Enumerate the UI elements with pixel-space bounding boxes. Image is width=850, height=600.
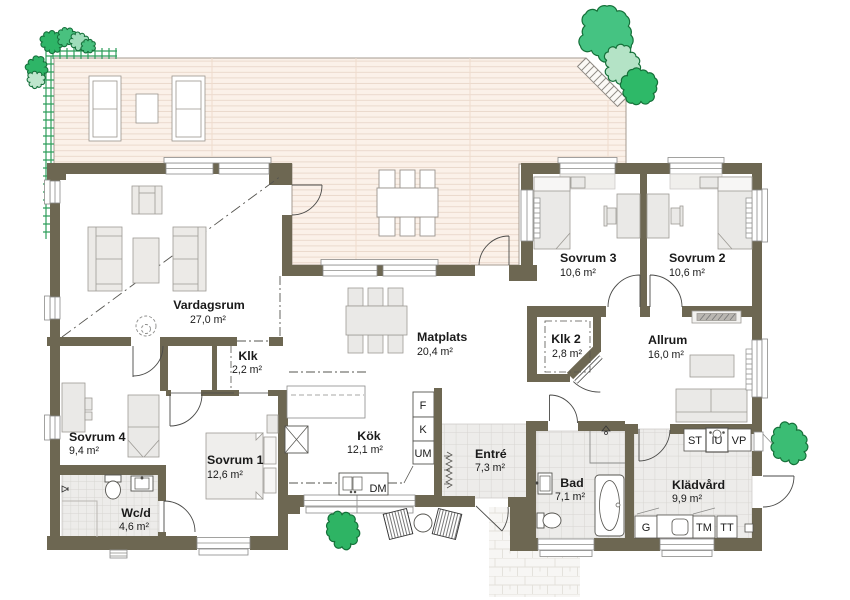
svg-text:9,9 m²: 9,9 m²	[672, 493, 702, 505]
svg-text:TM: TM	[696, 522, 712, 534]
svg-text:Bad: Bad	[560, 476, 583, 490]
svg-text:Kök: Kök	[357, 429, 381, 443]
svg-text:9,4 m²: 9,4 m²	[69, 445, 99, 457]
svg-text:ST: ST	[688, 435, 702, 447]
svg-text:Klk 2: Klk 2	[551, 332, 581, 346]
svg-text:F: F	[420, 400, 427, 412]
svg-text:20,4 m²: 20,4 m²	[417, 346, 453, 358]
svg-text:7,1 m²: 7,1 m²	[555, 491, 585, 503]
svg-text:Sovrum 1: Sovrum 1	[207, 453, 264, 467]
svg-text:TT: TT	[720, 522, 734, 534]
svg-text:Klk: Klk	[238, 349, 257, 363]
svg-text:G: G	[642, 522, 651, 534]
svg-text:4,6 m²: 4,6 m²	[119, 521, 149, 533]
svg-text:Matplats: Matplats	[417, 330, 467, 344]
svg-text:7,3 m²: 7,3 m²	[475, 462, 505, 474]
svg-text:16,0 m²: 16,0 m²	[648, 349, 684, 361]
svg-text:2,2 m²: 2,2 m²	[232, 364, 262, 376]
svg-text:Entré: Entré	[475, 447, 507, 461]
svg-text:Allrum: Allrum	[648, 333, 687, 347]
svg-text:Wc/d: Wc/d	[121, 506, 151, 520]
svg-text:VP: VP	[732, 435, 747, 447]
svg-text:2,8 m²: 2,8 m²	[552, 348, 582, 360]
svg-text:10,6 m²: 10,6 m²	[560, 267, 596, 279]
svg-text:IU: IU	[712, 435, 723, 447]
svg-text:Sovrum 2: Sovrum 2	[669, 251, 726, 265]
svg-text:DM: DM	[369, 483, 386, 495]
svg-text:Sovrum 3: Sovrum 3	[560, 251, 617, 265]
svg-text:Klädvård: Klädvård	[672, 478, 725, 492]
svg-text:UM: UM	[414, 448, 431, 460]
svg-text:Sovrum 4: Sovrum 4	[69, 430, 126, 444]
svg-text:Vardagsrum: Vardagsrum	[173, 298, 245, 312]
svg-text:12,6 m²: 12,6 m²	[207, 469, 243, 481]
svg-text:10,6 m²: 10,6 m²	[669, 267, 705, 279]
svg-text:27,0 m²: 27,0 m²	[190, 314, 226, 326]
svg-text:12,1 m²: 12,1 m²	[347, 444, 383, 456]
svg-text:K: K	[419, 424, 427, 436]
